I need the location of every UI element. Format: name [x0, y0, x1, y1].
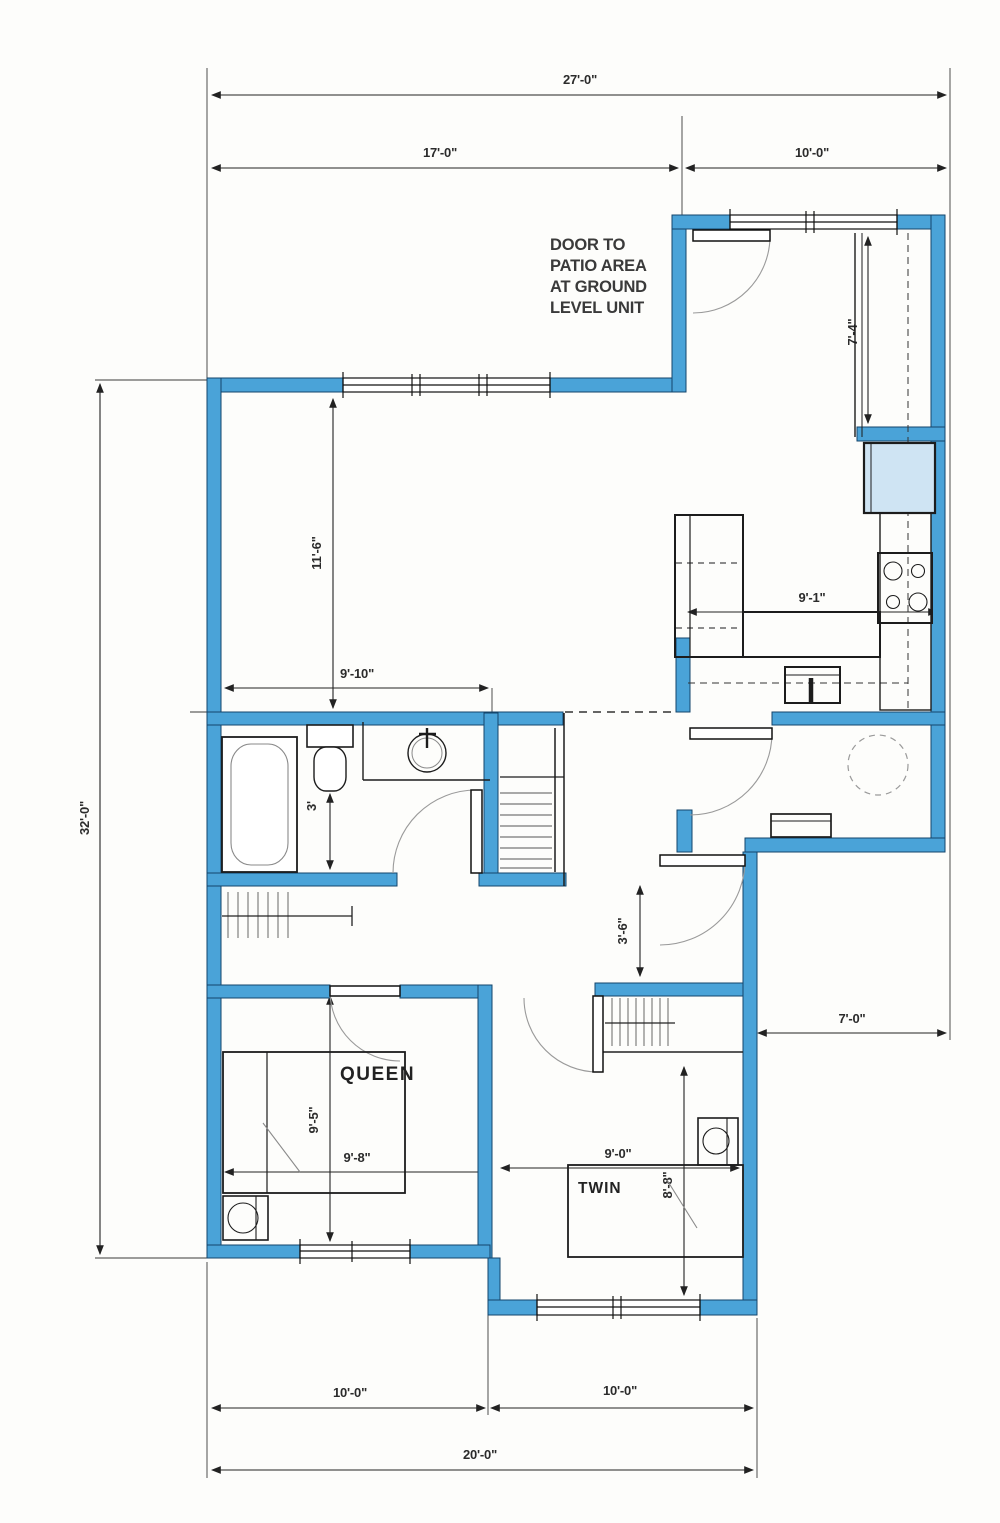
patio-door-note-line2: PATIO AREA — [550, 257, 647, 275]
bathroom-fixtures — [222, 722, 490, 872]
dim-entry-width: 7'-0" — [838, 1011, 865, 1026]
queen-closet — [222, 892, 352, 938]
entry-furniture — [771, 735, 908, 837]
patio-door-note-line3: AT GROUND — [550, 278, 647, 296]
patio-door-note-line4: LEVEL UNIT — [550, 299, 644, 317]
dim-bottom-overall-width: 20'-0" — [463, 1447, 497, 1462]
patio-door — [693, 230, 770, 313]
dim-kitchen-width: 9'-1" — [798, 590, 825, 605]
dim-queen-width: 9'-8" — [343, 1150, 370, 1165]
dim-bottom-left-width: 10'-0" — [333, 1385, 367, 1400]
twin-bed — [568, 1165, 743, 1257]
front-door — [690, 728, 772, 815]
hall-door — [660, 855, 745, 945]
dim-upper-left-width: 17'-0" — [423, 145, 457, 160]
patio-door-note-line1: DOOR TO — [550, 236, 626, 254]
twin-closet — [600, 998, 743, 1052]
dim-twin-depth: 8'-8" — [660, 1171, 675, 1198]
queen-door — [330, 986, 400, 1061]
queen-nightstand — [223, 1196, 268, 1240]
entry-bench — [771, 814, 831, 837]
window-twin — [537, 1294, 700, 1321]
dim-bottom-right-width: 10'-0" — [603, 1383, 637, 1398]
bathtub — [222, 737, 297, 872]
dim-overall-height: 32'-0" — [77, 801, 92, 835]
dim-patio-closet-height: 7'-4" — [845, 318, 860, 345]
stairs — [500, 713, 564, 886]
dim-living-width: 9'-10" — [340, 666, 374, 681]
dim-twin-width: 9'-0" — [604, 1146, 631, 1161]
kitchen-island — [785, 667, 840, 703]
windows-layer — [300, 209, 897, 1321]
dim-living-height: 11'-6" — [309, 536, 324, 569]
twin-nightstand — [698, 1118, 738, 1165]
kitchen-peninsula-counter — [675, 515, 880, 657]
twin-room-label: TWIN — [578, 1180, 622, 1197]
kitchen-fixtures — [675, 233, 935, 710]
refrigerator — [864, 443, 935, 513]
dim-queen-depth: 9'-5" — [306, 1106, 321, 1133]
floor-plan-drawing: 27'-0" 17'-0" 10'-0" 32'-0" 7'-4" 11'-6"… — [0, 0, 1000, 1523]
floor-plan-sheet: 27'-0" 17'-0" 10'-0" 32'-0" 7'-4" 11'-6"… — [0, 0, 1000, 1523]
window-living — [343, 372, 550, 398]
toilet — [307, 725, 353, 791]
bathroom-sink — [408, 728, 446, 772]
dim-hall-width: 3'-6" — [615, 917, 630, 944]
dim-bath-offset: 3' — [304, 801, 319, 811]
twin-door — [524, 996, 603, 1072]
dim-upper-right-width: 10'-0" — [795, 145, 829, 160]
round-table — [848, 735, 908, 795]
queen-room-label: QUEEN — [340, 1064, 415, 1085]
doors-layer — [330, 230, 772, 1072]
dim-overall-width: 27'-0" — [563, 72, 597, 87]
window-queen — [300, 1239, 410, 1264]
bathroom-door — [393, 790, 482, 873]
